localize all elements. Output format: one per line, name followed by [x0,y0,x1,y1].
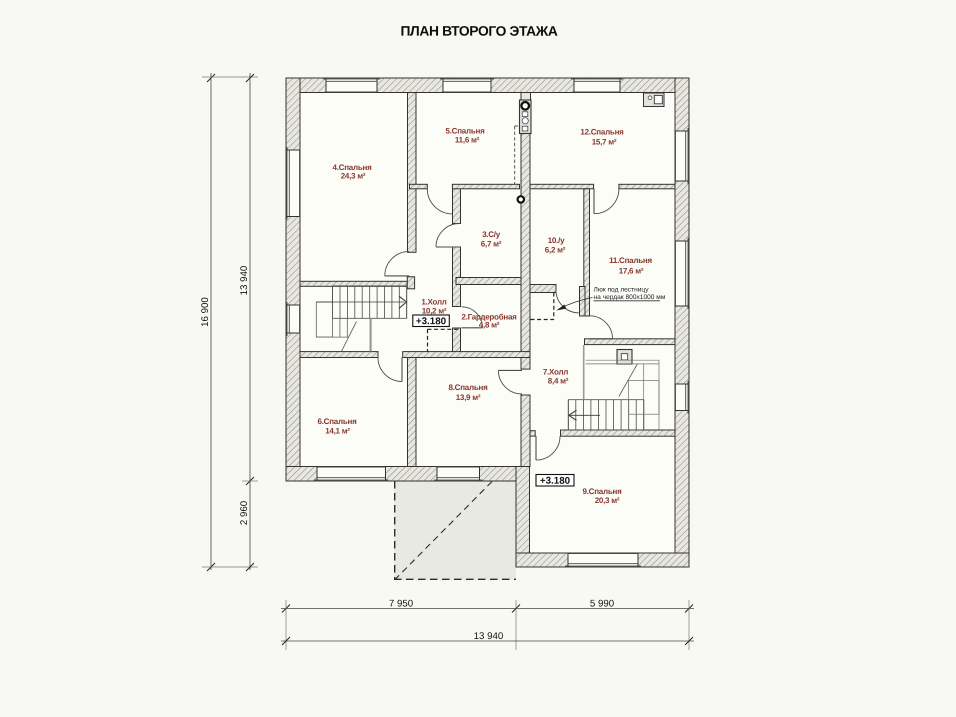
svg-text:+3.180: +3.180 [540,476,571,487]
svg-text:16 900: 16 900 [200,297,211,327]
svg-text:4,8 м²: 4,8 м² [479,320,500,329]
svg-text:9.Спальня: 9.Спальня [583,487,623,496]
svg-text:+3.180: +3.180 [416,316,447,327]
svg-text:7.Холл: 7.Холл [543,367,568,376]
svg-text:10./у: 10./у [548,236,565,245]
svg-text:12.Спальня: 12.Спальня [580,127,624,136]
svg-text:3.С/у: 3.С/у [482,230,501,239]
svg-text:11,6 м²: 11,6 м² [455,135,480,144]
svg-text:5 990: 5 990 [590,598,615,609]
svg-text:1.Холл: 1.Холл [421,297,446,306]
svg-text:7 950: 7 950 [389,598,414,609]
svg-text:6.Спальня: 6.Спальня [318,417,358,426]
svg-text:13 940: 13 940 [239,265,250,295]
svg-text:14,1 м²: 14,1 м² [325,426,350,435]
svg-text:11.Спальня: 11.Спальня [609,256,652,265]
svg-text:24,3 м²: 24,3 м² [341,171,366,180]
svg-text:6,2 м²: 6,2 м² [545,245,566,254]
svg-text:ПЛАН ВТОРОГО ЭТАЖА: ПЛАН ВТОРОГО ЭТАЖА [400,24,557,39]
svg-text:на чердак 800х1000 мм: на чердак 800х1000 мм [593,294,665,301]
svg-text:5.Спальня: 5.Спальня [446,126,486,135]
svg-text:10,2 м²: 10,2 м² [422,306,447,315]
svg-text:8.Спальня: 8.Спальня [449,383,489,392]
svg-text:13,9 м²: 13,9 м² [456,393,481,402]
svg-text:2 960: 2 960 [239,500,250,525]
svg-text:13 940: 13 940 [474,631,504,642]
svg-text:8,4 м²: 8,4 м² [548,376,569,385]
svg-text:20,3 м²: 20,3 м² [595,496,620,505]
svg-text:6,7 м²: 6,7 м² [481,239,502,248]
svg-text:15,7 м²: 15,7 м² [592,137,617,146]
svg-text:Люк под лестницу: Люк под лестницу [593,287,649,294]
svg-text:17,6 м²: 17,6 м² [619,266,644,275]
